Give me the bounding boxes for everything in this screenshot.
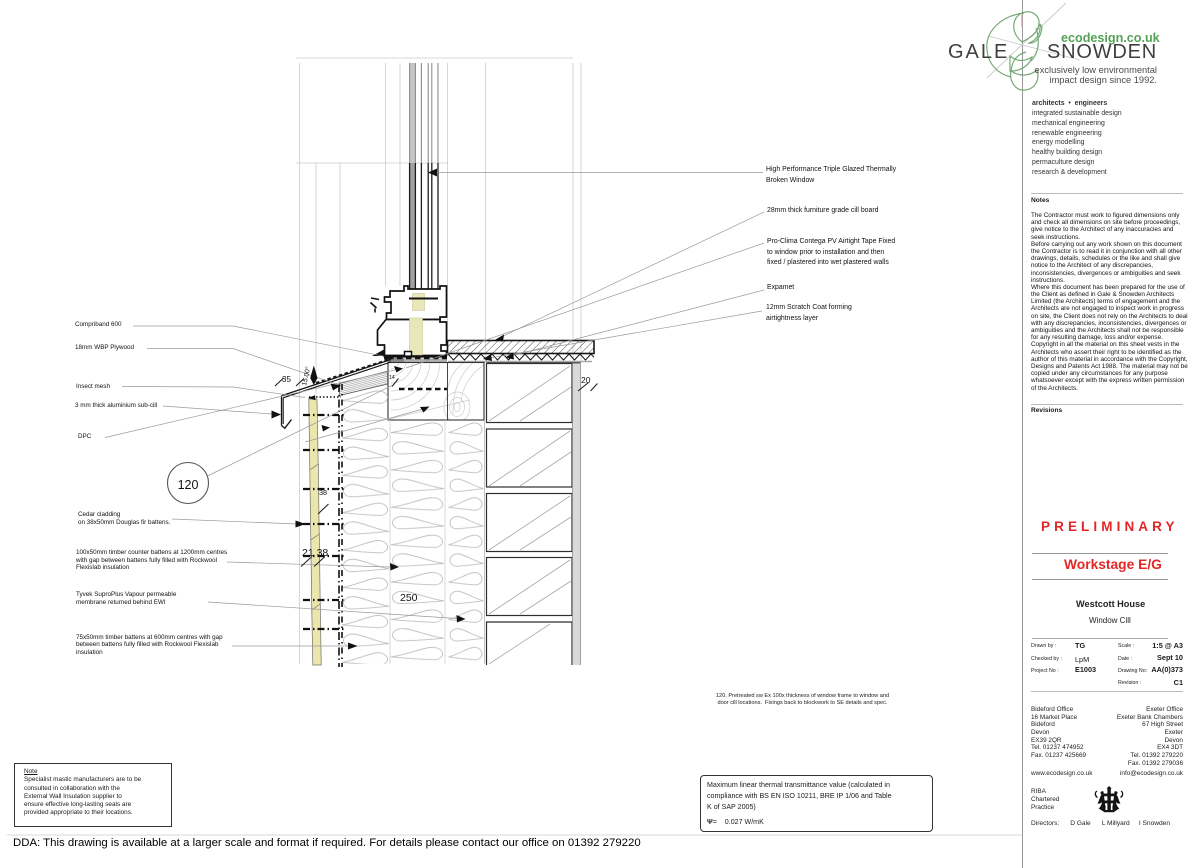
svg-text:14: 14 — [389, 375, 395, 381]
svg-text:20: 20 — [581, 375, 591, 385]
svg-text:35: 35 — [282, 375, 291, 384]
svg-text:21 38: 21 38 — [302, 547, 328, 559]
svg-text:38: 38 — [319, 488, 327, 497]
svg-text:120: 120 — [178, 478, 199, 492]
svg-text:250: 250 — [400, 592, 418, 604]
svg-text:15.00°: 15.00° — [300, 365, 312, 386]
